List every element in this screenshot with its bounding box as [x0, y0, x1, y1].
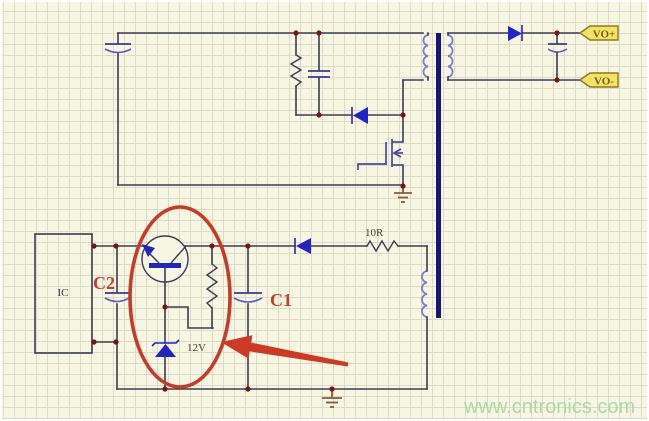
ic-label: IC [58, 287, 69, 299]
pointer-arrow-icon [221, 335, 348, 366]
clamp-diode-icon [352, 107, 368, 124]
schematic-svg: VO+ VO- IC C2 [0, 0, 649, 421]
mosfet-icon [358, 139, 403, 170]
aux-diode-icon [295, 238, 367, 254]
transistor-icon [142, 236, 188, 307]
secondary-ground-icon [322, 389, 342, 407]
c2-capacitor-icon [105, 246, 129, 389]
c1-label: C1 [270, 290, 292, 310]
vo-plus-tag: VO+ [580, 26, 618, 41]
input-capacitor-icon [105, 44, 131, 53]
vo-plus-label: VO+ [593, 29, 616, 41]
vo-minus-label: VO- [594, 76, 614, 88]
snubber-capacitor-icon [308, 33, 330, 115]
transformer-icon [422, 33, 453, 318]
zener-value-label: 12V [187, 342, 206, 354]
aux-resistor-icon [367, 241, 427, 389]
aux-resistor-value-label: 10R [365, 227, 384, 239]
vo-minus-tag: VO- [580, 73, 618, 88]
output-capacitor-icon [548, 33, 567, 80]
primary-loop-wires [118, 33, 423, 185]
schematic-image: VO+ VO- IC C2 [0, 0, 649, 421]
junction-dots [91, 30, 559, 391]
watermark-text: www.cntronics.com [463, 396, 635, 418]
output-diode-icon [508, 25, 522, 41]
snubber-resistor-icon [291, 33, 301, 115]
c2-label: C2 [93, 273, 115, 293]
c1-capacitor-icon [234, 246, 262, 389]
transformer-core [436, 33, 441, 318]
